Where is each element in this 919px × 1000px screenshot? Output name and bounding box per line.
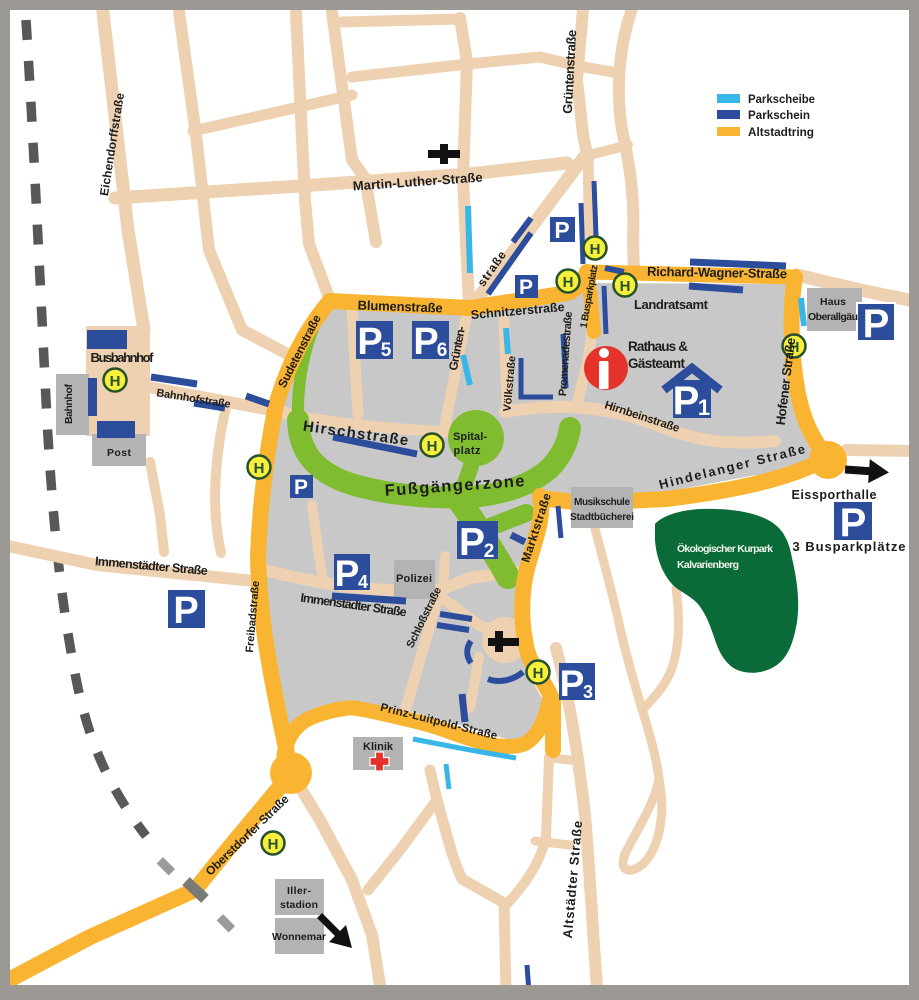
svg-text:Haus: Haus [820, 296, 846, 308]
svg-text:P: P [294, 476, 308, 499]
svg-text:4: 4 [358, 572, 368, 592]
svg-text:P: P [173, 590, 198, 632]
svg-text:Post: Post [107, 447, 132, 459]
svg-text:Gästeamt: Gästeamt [628, 356, 686, 371]
svg-text:Spital-: Spital- [453, 431, 487, 443]
svg-text:Altstadtring: Altstadtring [748, 125, 814, 139]
svg-text:6: 6 [437, 340, 448, 361]
svg-text:Klinik: Klinik [363, 741, 394, 753]
svg-text:P: P [673, 379, 700, 423]
svg-text:Stadtbücherei: Stadtbücherei [570, 512, 634, 523]
svg-text:Busbahnhof: Busbahnhof [91, 350, 155, 365]
svg-text:Blumenstraße: Blumenstraße [357, 298, 442, 316]
svg-text:P: P [413, 321, 438, 363]
svg-text:Polizei: Polizei [396, 573, 432, 585]
svg-text:H: H [563, 274, 574, 291]
svg-text:H: H [268, 836, 279, 853]
svg-text:P: P [560, 663, 585, 704]
svg-text:Musikschule: Musikschule [574, 497, 630, 508]
svg-text:5: 5 [381, 340, 392, 361]
svg-text:1: 1 [698, 395, 710, 420]
svg-text:Ökologischer Kurpark: Ökologischer Kurpark [677, 542, 773, 555]
svg-text:Parkscheibe: Parkscheibe [748, 92, 815, 106]
svg-text:Richard-Wagner-Straße: Richard-Wagner-Straße [647, 264, 787, 281]
svg-text:H: H [110, 373, 121, 390]
svg-text:H: H [533, 665, 544, 682]
svg-text:Wonnemar: Wonnemar [272, 931, 326, 943]
svg-text:Iller-: Iller- [287, 885, 312, 897]
svg-text:H: H [427, 438, 438, 455]
svg-text:P: P [335, 553, 360, 594]
svg-text:P: P [459, 521, 485, 564]
svg-text:Kalvarienberg: Kalvarienberg [677, 559, 739, 571]
svg-text:Rathaus &: Rathaus & [628, 339, 688, 354]
svg-text:H: H [620, 278, 631, 295]
svg-text:3 Busparkplätze: 3 Busparkplätze [793, 539, 906, 554]
svg-text:Oberallgäu: Oberallgäu [808, 311, 858, 323]
svg-text:P: P [554, 217, 569, 243]
svg-text:Landratsamt: Landratsamt [634, 297, 709, 312]
svg-text:stadion: stadion [280, 899, 318, 911]
svg-text:platz: platz [454, 445, 482, 457]
svg-text:H: H [254, 460, 265, 477]
svg-text:P: P [863, 302, 890, 346]
svg-text:P: P [519, 276, 533, 299]
svg-text:2: 2 [484, 541, 495, 562]
svg-text:Parkschein: Parkschein [748, 108, 810, 122]
svg-text:H: H [590, 241, 601, 258]
svg-text:P: P [357, 321, 382, 363]
svg-text:Bahnhof: Bahnhof [63, 384, 75, 425]
svg-text:3: 3 [583, 682, 593, 702]
svg-text:Eissporthalle: Eissporthalle [792, 488, 877, 502]
